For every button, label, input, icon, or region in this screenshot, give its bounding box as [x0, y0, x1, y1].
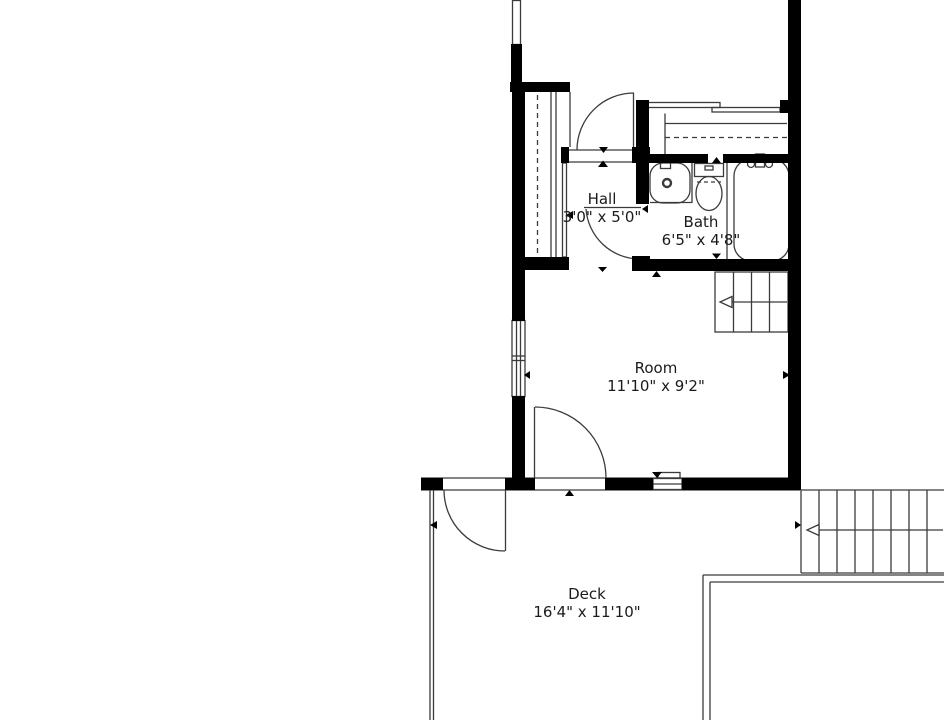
door-swing-arc	[535, 407, 606, 478]
door-swing-arc	[444, 490, 505, 551]
floor-plan: Hall 3'0" x 5'0" Bath 6'5" x 4'8" Room 1…	[0, 0, 944, 720]
exterior-stairs	[801, 490, 944, 573]
stairs-direction-arrow	[807, 525, 819, 536]
room-name: Bath	[662, 213, 741, 231]
sliding-door-panel	[712, 108, 780, 113]
floor-plan-drawing	[0, 0, 944, 720]
interior-stairs	[715, 272, 788, 332]
room-dimensions: 3'0" x 5'0"	[563, 208, 642, 226]
doorway-marker	[598, 267, 607, 272]
doorway-marker	[652, 271, 661, 277]
deck-door	[444, 490, 506, 551]
walls	[421, 0, 801, 490]
linen-closet	[648, 103, 787, 155]
sliding-door-panel	[648, 103, 720, 108]
lower-patio	[703, 575, 944, 720]
sink	[650, 159, 690, 204]
window-marker	[652, 472, 662, 478]
room-label-room: Room 11'10" x 9'2"	[607, 359, 705, 395]
window-left	[512, 321, 525, 397]
room-label-bath: Bath 6'5" x 4'8"	[662, 213, 741, 249]
room-label-deck: Deck 16'4" x 11'10"	[533, 585, 640, 621]
room-name: Room	[607, 359, 705, 377]
hall-doorway-threshold	[569, 150, 632, 162]
doorway-marker	[712, 157, 721, 163]
doorway-marker	[642, 205, 648, 213]
doorway-marker	[795, 521, 801, 529]
room-name: Hall	[563, 190, 642, 208]
bathtub	[734, 154, 789, 261]
room-dimensions: 11'10" x 9'2"	[607, 377, 705, 395]
door-swing-arc	[577, 93, 634, 150]
window-top	[513, 1, 521, 45]
toilet	[695, 164, 724, 211]
doorway-marker	[565, 490, 574, 496]
hall-closet	[538, 92, 567, 257]
stairs-direction-arrow	[720, 297, 732, 308]
room-name: Deck	[533, 585, 640, 603]
room-door	[535, 407, 607, 478]
doorway-marker	[712, 254, 721, 260]
room-label-hall: Hall 3'0" x 5'0"	[563, 190, 642, 226]
hall-door	[577, 93, 634, 150]
room-dimensions: 16'4" x 11'10"	[533, 603, 640, 621]
room-dimensions: 6'5" x 4'8"	[662, 231, 741, 249]
